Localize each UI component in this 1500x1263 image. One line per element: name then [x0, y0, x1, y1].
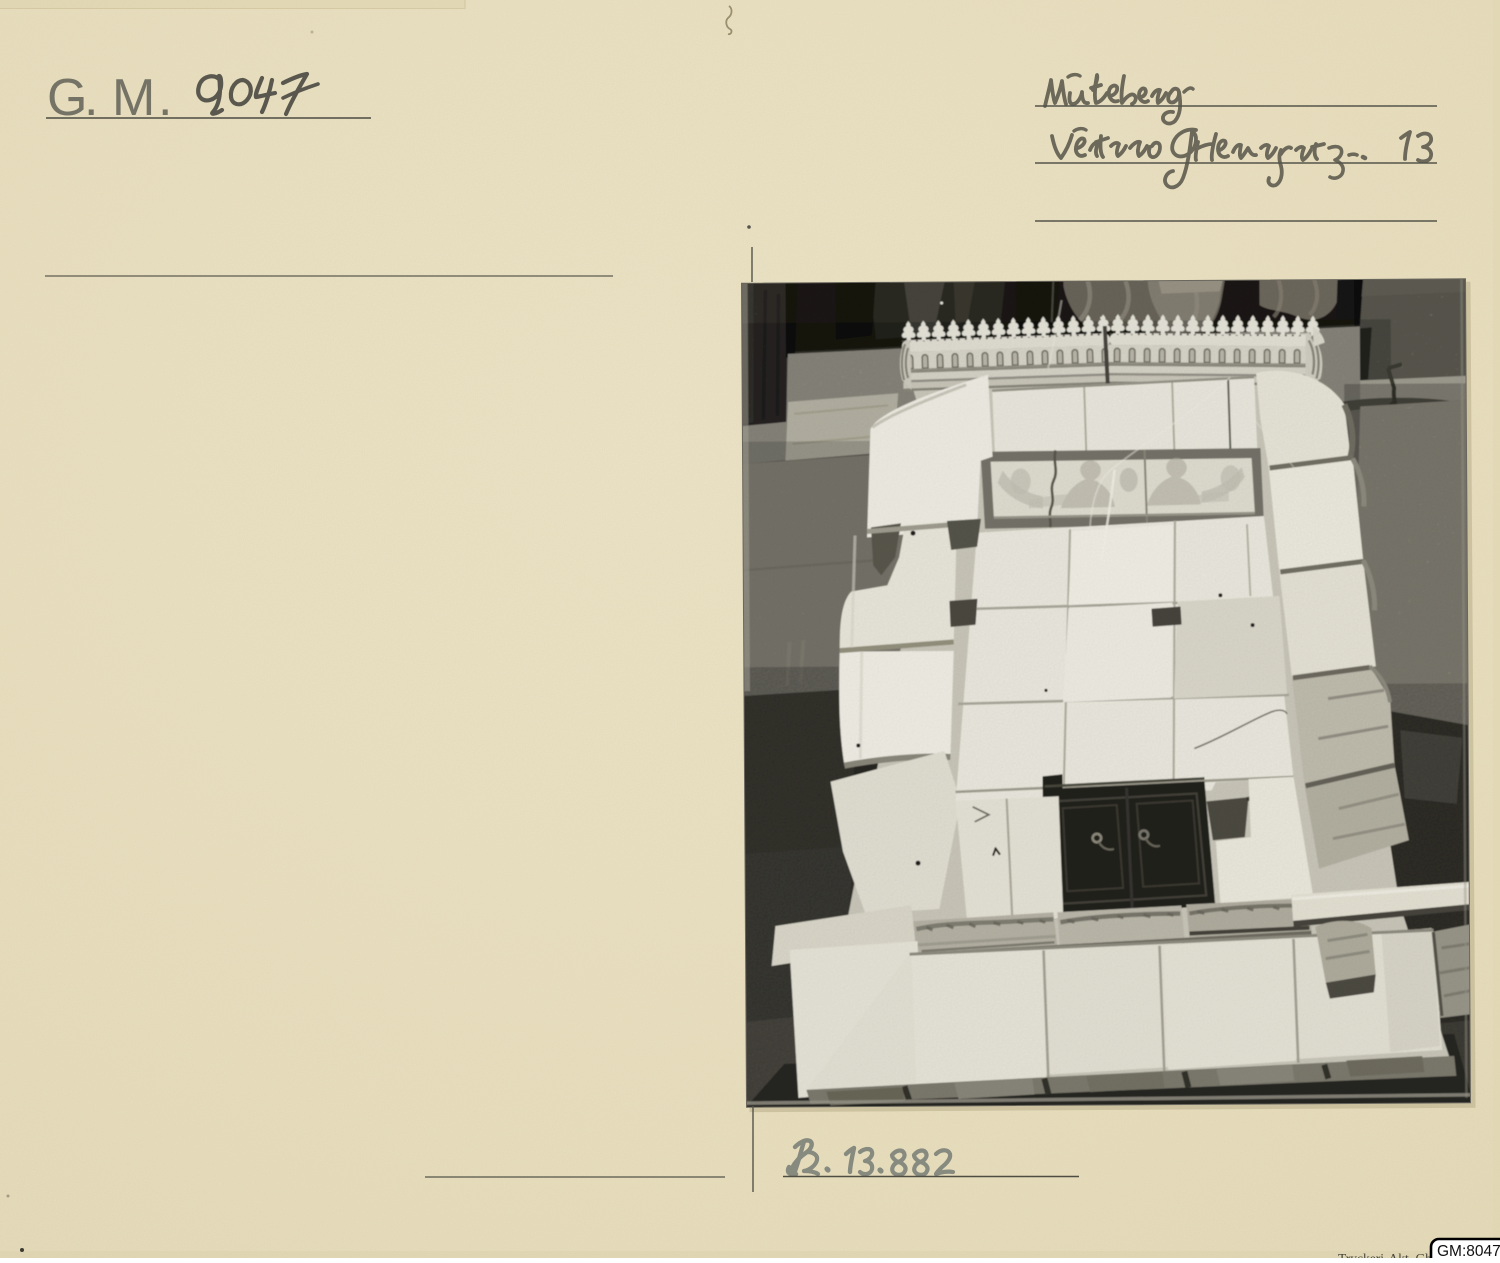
svg-text:GM:8047: GM:8047: [1437, 1243, 1500, 1258]
